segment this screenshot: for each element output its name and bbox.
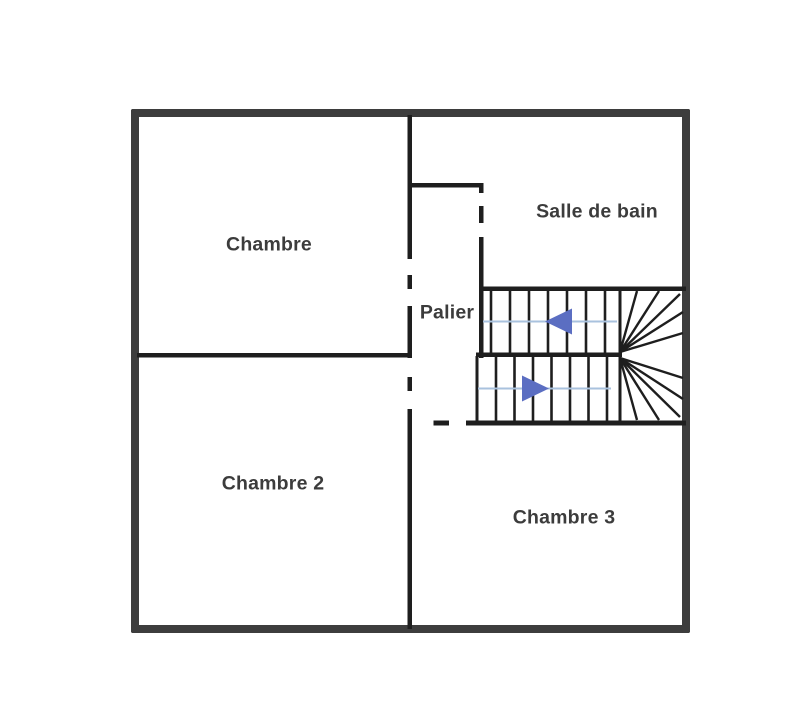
outer-wall-right <box>682 109 690 633</box>
wall-hall-top-stub <box>479 183 484 193</box>
door-dash-palier-upper <box>408 275 413 289</box>
wall-center-vertical-mid <box>408 306 413 358</box>
floor-plan-drawing <box>0 0 800 718</box>
stairs-upper-fan <box>620 291 683 352</box>
room-label-palier: Palier <box>420 302 474 325</box>
wall-hall-top <box>408 183 484 188</box>
wall-center-vertical-bottom <box>408 409 413 629</box>
interior-walls <box>137 115 686 629</box>
wall-chambre-divider <box>137 353 411 358</box>
room-label-chambre-2: Chambre 2 <box>222 473 325 496</box>
room-label-salle-de-bain: Salle de bain <box>536 201 658 224</box>
stairs-lower-fan <box>620 358 683 420</box>
stairs-lower-arrow-right-icon <box>522 376 549 402</box>
room-label-chambre: Chambre <box>226 234 312 257</box>
outer-wall-left <box>131 109 139 633</box>
room-label-chambre-3: Chambre 3 <box>513 507 616 530</box>
door-dash-salle-de-bain <box>479 206 484 223</box>
wall-stairs-bottom <box>466 421 686 426</box>
door-dash-palier-lower <box>408 377 413 391</box>
floor-plan-canvas: Chambre Salle de bain Palier Chambre 2 C… <box>0 0 800 718</box>
wall-salle-de-bain-left <box>479 237 484 358</box>
wall-stairs-divider <box>476 353 622 358</box>
door-dash-chambre3 <box>434 421 450 426</box>
